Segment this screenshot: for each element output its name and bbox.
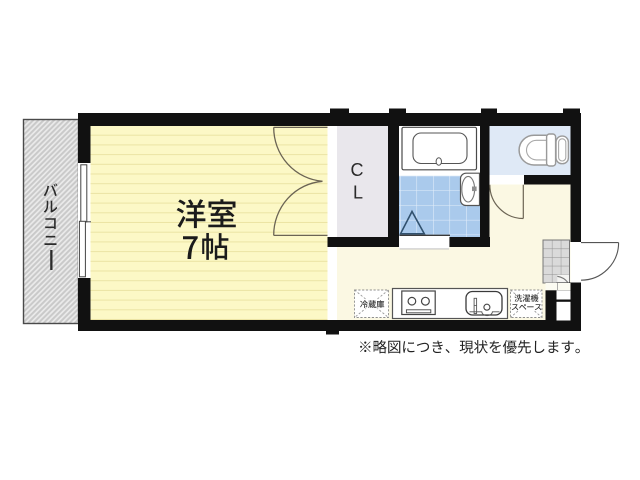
svg-text:C: C [351, 160, 364, 180]
svg-text:L: L [353, 183, 363, 203]
